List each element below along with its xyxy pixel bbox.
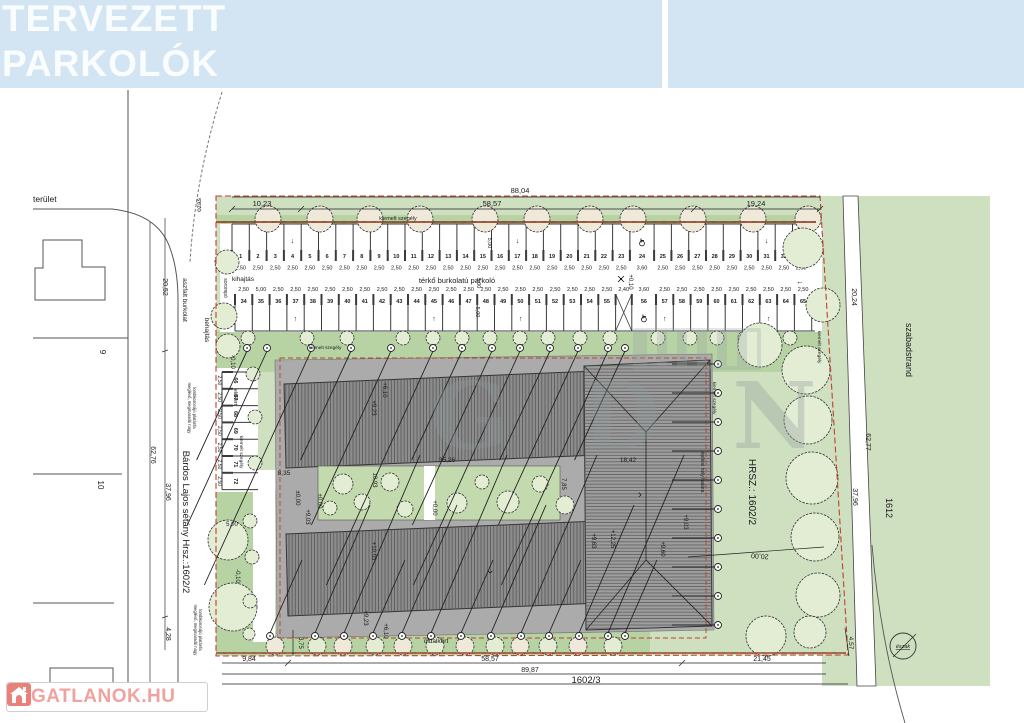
svg-text:2,50: 2,50 <box>677 287 688 293</box>
depth-dim-3: 5,00 <box>474 307 480 318</box>
svg-text:2,50: 2,50 <box>216 476 222 486</box>
svg-text:45: 45 <box>431 299 437 305</box>
svg-text:5,00: 5,00 <box>256 287 267 293</box>
svg-text:59: 59 <box>696 299 702 305</box>
barrier-label: sorompó <box>222 278 228 298</box>
planned-parking-siteplan: { "header": { "line1": "TERVEZETT", "lin… <box>0 0 1024 723</box>
svg-text:↑: ↑ <box>519 316 523 323</box>
svg-text:2,50: 2,50 <box>356 266 367 272</box>
svg-text:1: 1 <box>239 254 242 260</box>
svg-text:2,50: 2,50 <box>616 266 627 272</box>
svg-text:49: 49 <box>500 299 506 305</box>
svg-text:2,50: 2,50 <box>477 266 488 272</box>
svg-text:2,50: 2,50 <box>532 287 543 293</box>
building <box>275 354 714 638</box>
elev-p923-b: +9,23 <box>362 610 368 626</box>
svg-text:2,50: 2,50 <box>216 376 222 386</box>
dim-top-mid: 58,57 <box>483 199 502 208</box>
elev-p1225: +12,25 <box>609 530 615 549</box>
svg-text:2,50: 2,50 <box>238 287 249 293</box>
svg-text:2,50: 2,50 <box>780 287 791 293</box>
house-icon <box>7 683 31 706</box>
svg-text:16: 16 <box>497 254 503 260</box>
svg-text:57: 57 <box>662 299 668 305</box>
svg-text:15: 15 <box>480 254 486 260</box>
ingatlanok-logo: INGATLANOK.HU <box>6 682 208 712</box>
svg-text:2,50: 2,50 <box>216 392 222 402</box>
dim-bld-c: 35,26 <box>439 457 456 464</box>
dim-left-b: 62,76 <box>149 446 156 464</box>
svg-text:2,50: 2,50 <box>602 287 613 293</box>
svg-text:2,50: 2,50 <box>692 266 703 272</box>
svg-text:72: 72 <box>232 478 238 484</box>
elev-p000: +0,00 <box>431 500 437 516</box>
dim-bld-b: 10,93 <box>371 472 377 488</box>
svg-text:18: 18 <box>532 254 538 260</box>
svg-text:2,50: 2,50 <box>325 287 336 293</box>
svg-text:11: 11 <box>411 254 417 260</box>
svg-text:2,50: 2,50 <box>374 266 385 272</box>
svg-text:2,50: 2,50 <box>584 287 595 293</box>
svg-text:31: 31 <box>763 254 769 260</box>
platan-note-2a: meglévő, megmaradó nagy <box>193 605 198 657</box>
svg-text:24: 24 <box>639 254 646 260</box>
svg-text:58: 58 <box>679 299 685 305</box>
svg-text:14: 14 <box>462 254 469 260</box>
svg-text:20: 20 <box>566 254 572 260</box>
svg-text:28: 28 <box>712 254 718 260</box>
curb-label: kiemelt szegély <box>379 216 417 222</box>
hrsz-label: HRSZ.: 1602/2 <box>746 459 757 526</box>
svg-text:3: 3 <box>274 254 277 260</box>
street-label-cut: ozás <box>196 197 203 211</box>
parking-surface-label: térkő burkolatú parkoló <box>419 276 495 285</box>
svg-text:2,50: 2,50 <box>567 287 578 293</box>
svg-text:56: 56 <box>641 299 647 305</box>
svg-text:3,60: 3,60 <box>637 266 648 272</box>
svg-text:2,50: 2,50 <box>694 287 705 293</box>
elev-p903-a: +9,03 <box>304 509 310 525</box>
elev-m010-b: -0,10 <box>234 569 240 583</box>
dim-bottom-e: 4,57 <box>847 637 854 650</box>
exit-label: kihajtás <box>232 276 255 283</box>
dim-top-right: 19,24 <box>747 199 766 208</box>
platan-note-1b: lombkoronájú platánfa <box>192 387 197 429</box>
svg-text:64: 64 <box>783 299 790 305</box>
north-label: észak <box>896 644 911 650</box>
dim-left-a: 20,52 <box>161 278 168 296</box>
dim-bld-e: 7,85 <box>560 478 566 490</box>
svg-text:2,50: 2,50 <box>798 287 809 293</box>
svg-text:←: ← <box>796 277 804 286</box>
dim-left-c: 37,96 <box>164 483 171 501</box>
parcel-9: 9 <box>98 350 107 355</box>
svg-text:23: 23 <box>618 254 624 260</box>
dim-bottom-a: 9,84 <box>242 656 256 663</box>
svg-text:2,50: 2,50 <box>599 266 610 272</box>
svg-text:2,50: 2,50 <box>744 266 755 272</box>
svg-text:54: 54 <box>587 299 594 305</box>
svg-text:37: 37 <box>292 299 298 305</box>
elev-p963: +9,63 <box>590 533 596 549</box>
elev-p923-a: +9,23 <box>370 400 376 416</box>
svg-text:26: 26 <box>677 254 683 260</box>
svg-text:2,50: 2,50 <box>443 266 454 272</box>
svg-text:2,50: 2,50 <box>273 287 284 293</box>
szabadstrand-label: szabadstrand <box>904 323 914 377</box>
svg-text:44: 44 <box>414 299 421 305</box>
building-limit-label: építési hely határa <box>699 452 705 493</box>
svg-text:48: 48 <box>483 299 489 305</box>
dim-top-left: 10,23 <box>253 199 272 208</box>
svg-text:2,50: 2,50 <box>391 266 402 272</box>
svg-text:2,50: 2,50 <box>778 266 789 272</box>
svg-text:62: 62 <box>748 299 754 305</box>
svg-text:↓: ↓ <box>291 238 295 245</box>
svg-text:12: 12 <box>428 254 434 260</box>
svg-text:6: 6 <box>326 254 329 260</box>
svg-text:7: 7 <box>343 254 346 260</box>
parcel-1612: 1612 <box>884 498 894 518</box>
svg-text:2,50: 2,50 <box>460 266 471 272</box>
brand-text: INGATLANOK.HU <box>11 686 175 708</box>
platan-note-2b: lombkoronájú platánfa <box>198 609 203 651</box>
svg-text:2,50: 2,50 <box>746 287 757 293</box>
svg-text:38: 38 <box>310 299 316 305</box>
svg-text:63: 63 <box>765 299 771 305</box>
depth-dim-1: 5,00 <box>486 238 492 249</box>
elev-p960: +9,60 <box>659 541 665 557</box>
svg-text:2: 2 <box>256 254 259 260</box>
svg-text:60: 60 <box>713 299 719 305</box>
dim-bottom-f: 20,00 <box>751 551 769 559</box>
svg-text:↓: ↓ <box>516 238 520 245</box>
svg-text:3,60: 3,60 <box>639 287 650 293</box>
svg-text:50: 50 <box>517 299 523 305</box>
dim-right-b: 62,77 <box>864 433 871 451</box>
svg-text:55: 55 <box>604 299 610 305</box>
svg-text:2,50: 2,50 <box>359 287 370 293</box>
svg-text:2,50: 2,50 <box>728 287 739 293</box>
svg-text:5: 5 <box>308 254 311 260</box>
svg-text:2,50: 2,50 <box>709 266 720 272</box>
svg-text:27: 27 <box>694 254 700 260</box>
svg-text:2,50: 2,50 <box>657 266 668 272</box>
svg-text:2,50: 2,50 <box>446 287 457 293</box>
svg-text:29: 29 <box>729 254 735 260</box>
svg-text:40: 40 <box>344 299 350 305</box>
svg-text:47: 47 <box>465 299 471 305</box>
dim-bottom-d: 21,45 <box>753 656 771 663</box>
elev-p610-a: +6,10 <box>381 382 387 398</box>
svg-text:2,50: 2,50 <box>675 266 686 272</box>
street-name: Bárdos Lajos sétány Hrsz.:1602/2 <box>180 451 191 594</box>
svg-text:2,50: 2,50 <box>253 266 264 272</box>
svg-text:↓: ↓ <box>765 238 769 245</box>
curb-label-3: kiemelt szegély <box>238 436 244 469</box>
dim-bld-a: 8,35 <box>278 470 291 477</box>
svg-text:43: 43 <box>396 299 402 305</box>
svg-text:2,50: 2,50 <box>322 266 333 272</box>
asphalt-label: aszfalt burkolat <box>181 278 188 322</box>
svg-text:17: 17 <box>514 254 520 260</box>
svg-text:71: 71 <box>232 461 238 467</box>
svg-text:41: 41 <box>362 299 368 305</box>
svg-text:↑: ↑ <box>432 316 436 323</box>
dim-top-total: 88,04 <box>511 186 530 195</box>
svg-text:2,50: 2,50 <box>547 266 558 272</box>
svg-text:9: 9 <box>378 254 381 260</box>
svg-text:42: 42 <box>379 299 385 305</box>
curb-label-2: kiemelt szegély <box>309 345 342 351</box>
svg-text:2,50: 2,50 <box>429 287 440 293</box>
dim-right-c: 37,96 <box>851 488 858 506</box>
svg-text:2,50: 2,50 <box>512 266 523 272</box>
svg-text:70: 70 <box>232 445 238 451</box>
courtyard-green <box>318 466 560 520</box>
svg-text:2,50: 2,50 <box>290 287 301 293</box>
dim-bld-d: 18,42 <box>620 457 637 464</box>
svg-text:25: 25 <box>660 254 666 260</box>
svg-text:69: 69 <box>232 428 238 434</box>
dim-500: 5,00 <box>226 522 238 528</box>
svg-text:2,50: 2,50 <box>515 287 526 293</box>
entry-label: behajtás <box>203 318 210 343</box>
platan-note-1a: meglévő, megmaradó nagy <box>187 383 192 435</box>
svg-text:↑: ↑ <box>767 316 771 323</box>
svg-text:46: 46 <box>448 299 454 305</box>
svg-text:›: › <box>638 489 642 501</box>
svg-text:35: 35 <box>258 299 264 305</box>
svg-text:2,50: 2,50 <box>408 266 419 272</box>
svg-text:30: 30 <box>746 254 752 260</box>
curb-label-5: kiemelt szegély <box>816 331 822 364</box>
svg-text:2,50: 2,50 <box>463 287 474 293</box>
elev-p1003: +10,03 <box>370 542 376 561</box>
parcel-1602-3: 1602/3 <box>571 675 600 686</box>
svg-text:61: 61 <box>731 299 737 305</box>
svg-text:10: 10 <box>393 254 399 260</box>
dim-bottom-b: 58,57 <box>481 656 499 663</box>
svg-text:2,50: 2,50 <box>307 287 318 293</box>
svg-text:2,50: 2,50 <box>659 287 670 293</box>
svg-text:2,50: 2,50 <box>761 266 772 272</box>
svg-text:52: 52 <box>552 299 558 305</box>
side-yard-label: oldalkert <box>424 638 449 645</box>
svg-text:65: 65 <box>800 299 806 305</box>
svg-text:51: 51 <box>535 299 541 305</box>
dim-bottom-g: 3,75 <box>297 637 303 649</box>
curb-label-4: kiemelt szegély <box>711 382 717 415</box>
svg-text:2,50: 2,50 <box>498 287 509 293</box>
elev-p610-b: +6,10 <box>382 623 388 639</box>
svg-text:39: 39 <box>327 299 333 305</box>
svg-text:2,50: 2,50 <box>304 266 315 272</box>
elev-z00-a: ±0,00 <box>316 494 322 510</box>
dim-bottom-c: 89,87 <box>521 667 539 674</box>
svg-text:2,50: 2,50 <box>727 266 738 272</box>
parcel-10: 10 <box>96 481 105 490</box>
svg-text:2,50: 2,50 <box>270 266 281 272</box>
svg-text:53: 53 <box>569 299 575 305</box>
svg-text:19: 19 <box>549 254 555 260</box>
svg-text:↑: ↑ <box>663 316 667 323</box>
terulet-label: terület <box>33 194 57 204</box>
svg-text:8: 8 <box>360 254 363 260</box>
svg-text:2,50: 2,50 <box>550 287 561 293</box>
svg-text:2,50: 2,50 <box>287 266 298 272</box>
svg-text:2,50: 2,50 <box>480 287 491 293</box>
svg-text:2,50: 2,50 <box>581 266 592 272</box>
svg-text:21: 21 <box>584 254 590 260</box>
svg-text:2,50: 2,50 <box>411 287 422 293</box>
svg-text:↑: ↑ <box>294 316 298 323</box>
svg-text:36: 36 <box>275 299 281 305</box>
site-plan-drawing: 12,5022,5032,5042,50↓52,5062,5072,5082,5… <box>0 0 1024 723</box>
front-yard-label: előkert <box>232 389 238 406</box>
neighbor-building-1 <box>35 240 105 300</box>
svg-text:2,50: 2,50 <box>495 266 506 272</box>
elev-m010-a: -0,10 <box>229 355 235 369</box>
svg-text:2,50: 2,50 <box>711 287 722 293</box>
depth-dim-2: 5,00 <box>475 278 481 289</box>
svg-text:2,50: 2,50 <box>339 266 350 272</box>
svg-text:2,50: 2,50 <box>564 266 575 272</box>
svg-text:2,50: 2,50 <box>377 287 388 293</box>
svg-text:2,50: 2,50 <box>529 266 540 272</box>
svg-text:2,50: 2,50 <box>342 287 353 293</box>
svg-text:2,50: 2,50 <box>394 287 405 293</box>
dim-right-a: 20,24 <box>850 288 857 306</box>
svg-text:2,50: 2,50 <box>426 266 437 272</box>
dim-left-d: 4,28 <box>164 627 171 641</box>
svg-text:22: 22 <box>601 254 607 260</box>
elev-p903-b: +9,03 <box>682 514 688 530</box>
svg-text:34: 34 <box>241 299 248 305</box>
svg-text:›: › <box>484 570 496 574</box>
elev-z00-b: ±0,00 <box>294 491 300 507</box>
svg-text:2,50: 2,50 <box>216 426 222 436</box>
svg-text:2,50: 2,50 <box>763 287 774 293</box>
svg-text:13: 13 <box>445 254 451 260</box>
elev-p010: +0,10 <box>627 274 633 290</box>
